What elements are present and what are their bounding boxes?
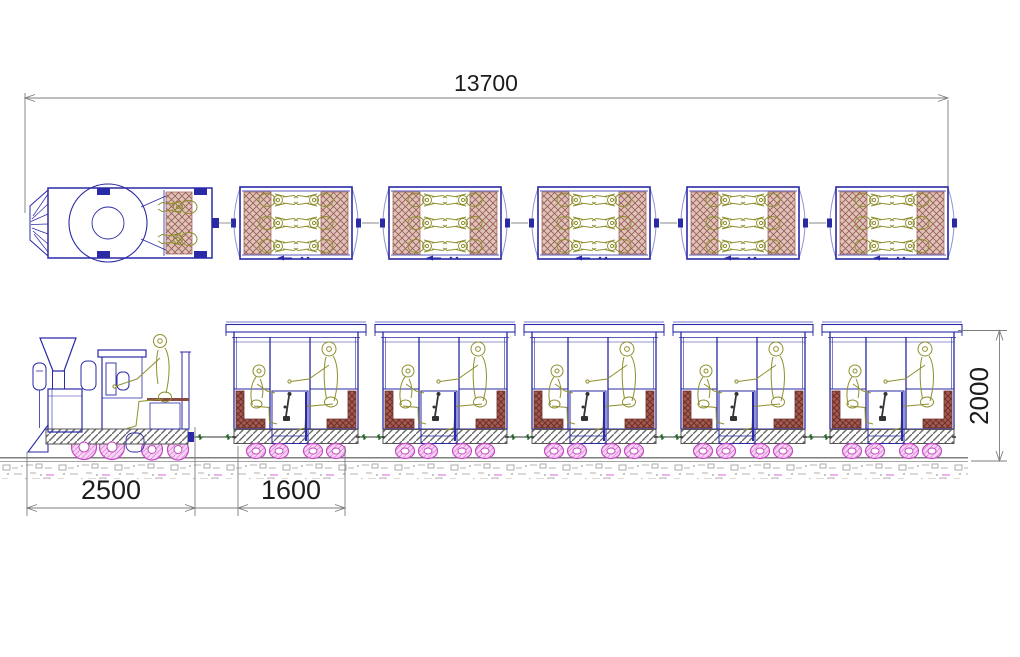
locomotive-side: [28, 335, 194, 461]
dimension-overall-height: 2000: [958, 331, 1007, 462]
carriage-side-3: [524, 322, 664, 459]
train-technical-drawing: 13700: [0, 0, 1020, 657]
carriage-side-2: [375, 322, 515, 459]
carriage-side-5: [822, 322, 962, 459]
carriage-plan-2: [380, 187, 510, 261]
carriage-side-1: [226, 322, 366, 459]
side-view: [0, 322, 968, 479]
carriage-side-4: [673, 322, 813, 459]
total-length-label: 13700: [454, 70, 518, 96]
locomotive-plan: [30, 184, 219, 262]
carriage-length-label: 1600: [261, 475, 321, 505]
plan-view: [30, 184, 957, 262]
dimension-total-length: 13700: [25, 70, 948, 213]
carriage-plan-1: [231, 187, 361, 261]
carriage-plan-4: [678, 187, 808, 261]
carriage-plan-5: [827, 187, 957, 261]
locomotive-length-label: 2500: [81, 475, 141, 505]
drawing-canvas: 13700: [0, 0, 1020, 657]
carriage-plan-3: [529, 187, 659, 261]
overall-height-label: 2000: [964, 367, 994, 425]
ground: [0, 458, 968, 479]
